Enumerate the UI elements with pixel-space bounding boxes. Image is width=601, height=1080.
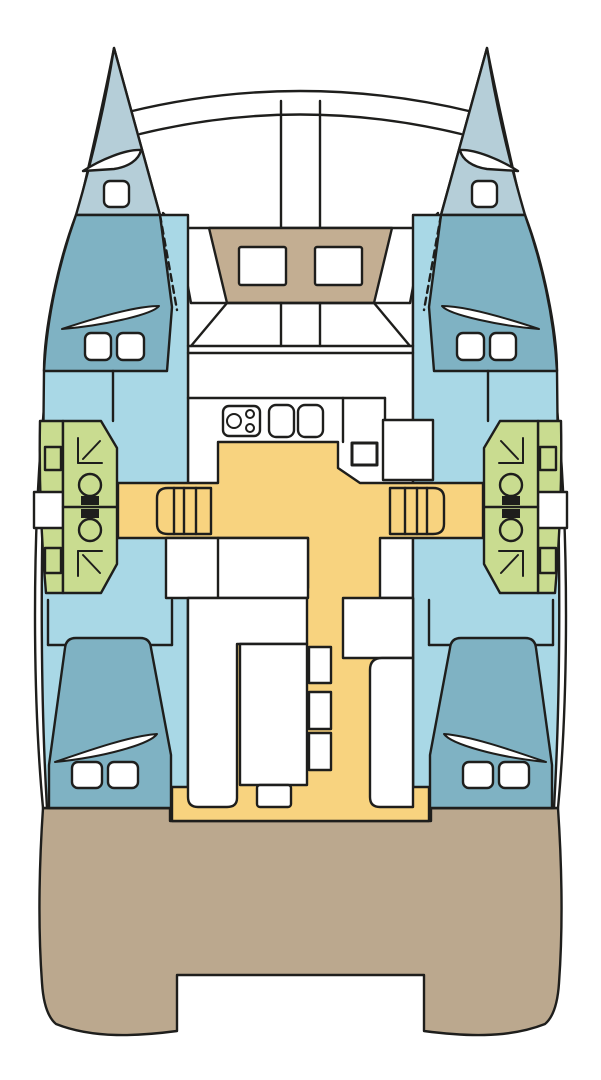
- floor-plan-page: [0, 0, 601, 1080]
- aft-berth-pillow-left: [72, 762, 102, 788]
- port-hull: [34, 48, 188, 808]
- crossbeam-arc-outer: [128, 91, 473, 112]
- windshield-mullion-right: [374, 303, 410, 346]
- crossbeam-arc-inner: [140, 115, 461, 135]
- head-porthole-aft: [45, 548, 61, 573]
- aft-berth-pillow-right: [108, 762, 138, 788]
- windshield-mullion-left: [191, 303, 227, 346]
- galley-forward-cabinets: [166, 538, 308, 598]
- sink-right: [298, 405, 323, 437]
- toilet-tank-forward: [81, 496, 99, 505]
- toilet-bowl-forward: [79, 474, 101, 496]
- galley-locker: [352, 443, 377, 465]
- salon-seat-3: [309, 733, 331, 770]
- salon-seat-2: [309, 692, 331, 729]
- starboard-hull: [413, 48, 567, 808]
- sink-left: [269, 405, 294, 437]
- coachroof-front: [188, 228, 413, 353]
- aft-galley-counter: [343, 598, 413, 658]
- salon-stool-aft: [257, 785, 291, 807]
- nav-station-desk: [383, 420, 433, 480]
- galley: [188, 398, 385, 442]
- toilet-tank-aft: [81, 509, 99, 518]
- catamaran-floor-plan: [0, 0, 601, 1080]
- foredeck-seat: [209, 228, 392, 303]
- foredeck-seat-window-left: [239, 247, 286, 285]
- forward-berth-pillow-left: [85, 333, 111, 360]
- head-porthole-forward: [45, 447, 61, 470]
- foredeck-seat-window-right: [315, 247, 362, 285]
- head-strip-gap: [34, 492, 63, 528]
- aft-deck: [39, 808, 561, 1035]
- toilet-bowl-aft: [79, 519, 101, 541]
- forward-berth-pillow-right: [117, 333, 144, 360]
- salon-table: [240, 644, 307, 785]
- salon-seat-1: [309, 647, 331, 683]
- bow-deck-hatch: [104, 181, 129, 207]
- chart-seat: [370, 658, 413, 807]
